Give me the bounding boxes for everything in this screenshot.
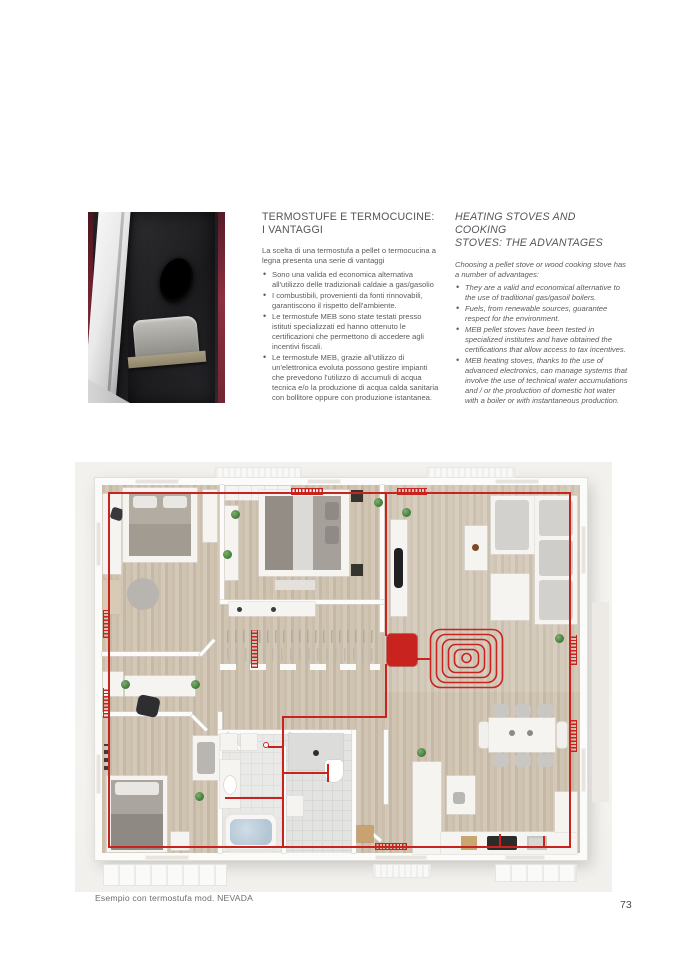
table-decor <box>472 544 479 551</box>
sofa-cushion <box>539 540 573 576</box>
radiator <box>251 630 258 668</box>
bed-blanket <box>265 496 293 570</box>
heating-pipe-tee <box>327 764 329 782</box>
kitchen-tall-cabinet <box>555 792 577 832</box>
pellet-stove-marker <box>387 634 417 666</box>
table-setting <box>509 730 515 736</box>
nightstand <box>351 564 363 576</box>
hanging-clothes-row <box>227 630 375 643</box>
heating-pipe-left <box>108 492 110 848</box>
stool <box>453 792 465 804</box>
english-title-line1: HEATING STOVES AND COOKING <box>455 211 576 236</box>
heating-pipe-branch <box>385 492 387 636</box>
plant <box>195 792 204 801</box>
english-bullet-list: They are a valid and economical alternat… <box>455 283 629 406</box>
english-bullet: MEB pellet stoves have been tested in sp… <box>455 325 629 355</box>
dining-chair-end <box>557 722 567 748</box>
italian-bullet: Sono una valida ed economica alternativa… <box>262 270 439 290</box>
wall <box>352 730 356 853</box>
wall <box>102 652 200 656</box>
plant <box>191 680 200 689</box>
bed-runner <box>293 496 313 570</box>
window <box>307 479 341 484</box>
ottoman <box>491 574 529 620</box>
italian-title: TERMOSTUFE E TERMOCUCINE: I VANTAGGI <box>262 211 439 237</box>
shelf-item <box>271 607 276 612</box>
italian-title-line1: TERMOSTUFE E TERMOCUCINE: <box>262 211 435 223</box>
storage-box <box>357 826 373 842</box>
plant <box>231 510 240 519</box>
radiator <box>103 610 110 638</box>
heating-pipe-top <box>108 492 571 494</box>
doormat-bottom-center <box>373 864 431 878</box>
kitchen-peninsula <box>413 762 441 854</box>
heating-pipe-corridor <box>282 716 387 718</box>
radiator <box>570 720 577 752</box>
english-bullet: MEB heating stoves, thanks to the use of… <box>455 356 629 406</box>
radiator <box>570 635 577 665</box>
pillow <box>325 502 339 520</box>
bed-blanket <box>129 524 191 556</box>
italian-title-line2: I VANTAGGI <box>262 224 323 236</box>
window <box>495 479 539 484</box>
plant <box>417 748 426 757</box>
italian-intro: La scelta di una termostufa a pellet o t… <box>262 246 439 266</box>
terrace-door <box>505 855 545 860</box>
round-rug <box>127 578 159 610</box>
window <box>96 522 101 566</box>
tv <box>394 548 403 588</box>
dining-chair <box>537 754 553 767</box>
heating-pipe-kitchen-stub <box>499 834 501 846</box>
wall <box>384 730 388 804</box>
heating-pipe-stub <box>268 746 282 748</box>
dining-chair-end <box>479 722 489 748</box>
stove-red-edge-right <box>218 212 225 403</box>
sofa-cushion <box>495 500 529 550</box>
doormat-top-left <box>215 467 301 478</box>
italian-bullet: I combustibili, provenienti da fonti rin… <box>262 291 439 311</box>
dining-chair <box>493 754 509 767</box>
english-title-line2: STOVES: THE ADVANTAGES <box>455 237 603 249</box>
bed-blanket <box>111 814 163 850</box>
hanging-clothes-row <box>227 648 375 661</box>
underfloor-heating-coil <box>429 628 505 690</box>
closet-divider-wall <box>220 664 380 670</box>
radiator <box>291 488 323 495</box>
english-column: HEATING STOVES AND COOKING STOVES: THE A… <box>455 211 629 407</box>
washer <box>221 734 237 750</box>
italian-column: TERMOSTUFE E TERMOCUCINE: I VANTAGGI La … <box>262 211 439 404</box>
terrace-door <box>145 855 189 860</box>
english-bullet: They are a valid and economical alternat… <box>455 283 629 303</box>
window <box>581 748 586 792</box>
wardrobe-cabinet <box>203 490 217 542</box>
wall <box>380 485 384 632</box>
window <box>135 479 179 484</box>
plant <box>374 498 383 507</box>
vanity-desk <box>103 494 121 574</box>
floor-plan-caption: Esempio con termostufa mod. NEVADA <box>95 893 253 903</box>
dining-chair <box>537 704 553 717</box>
dining-chair <box>515 704 531 717</box>
english-intro: Choosing a pellet stove or wood cooking … <box>455 260 629 280</box>
plant <box>402 508 411 517</box>
window <box>581 526 586 574</box>
office-chair <box>135 694 161 718</box>
plant <box>223 550 232 559</box>
window <box>96 754 101 794</box>
heating-pipe-branch <box>385 664 387 718</box>
heating-pipe-bath-branch <box>282 772 328 774</box>
heating-pipe-kitchen-stub <box>543 836 545 846</box>
dining-chair <box>515 754 531 767</box>
english-bullet: Fuels, from renewable sources, guarantee… <box>455 304 629 324</box>
stove-detail-photo <box>88 212 225 403</box>
terrace-bottom-right <box>495 864 577 882</box>
pillow <box>163 496 187 508</box>
catalog-page: TERMOSTUFE E TERMOCUCINE: I VANTAGGI La … <box>0 0 678 959</box>
heating-pipe-bath-branch <box>225 797 282 799</box>
pillow <box>133 496 157 508</box>
heating-pipe-bottom <box>108 846 571 848</box>
heating-pipe-right <box>569 492 571 848</box>
page-number: 73 <box>620 899 632 911</box>
italian-bullet: Le termostufe MEB sono state testati pre… <box>262 312 439 352</box>
terrace-door <box>375 855 427 860</box>
wall <box>220 485 224 602</box>
english-title: HEATING STOVES AND COOKING STOVES: THE A… <box>455 211 629 251</box>
plant <box>121 680 130 689</box>
radiator <box>103 688 110 718</box>
bathtub-water <box>230 819 272 845</box>
italian-bullet: Le termostufe MEB, grazie all'utilizzo d… <box>262 353 439 403</box>
plant <box>555 634 564 643</box>
dining-chair <box>493 704 509 717</box>
terrace-bottom-left <box>103 864 227 886</box>
bench <box>103 580 121 614</box>
sink <box>224 776 236 794</box>
armchair-cushion <box>197 742 215 774</box>
sofa-cushion <box>539 580 573 620</box>
pillow <box>325 526 339 544</box>
dining-table <box>489 718 555 752</box>
washbasin <box>287 796 303 816</box>
dryer <box>241 734 257 750</box>
italian-bullet-list: Sono una valida ed economica alternativa… <box>262 270 439 403</box>
sofa-cushion <box>539 500 573 536</box>
bench <box>275 580 315 590</box>
heating-pipe-bath <box>282 716 284 848</box>
doormat-top-right <box>427 467 515 478</box>
side-balcony <box>591 602 609 802</box>
floor-plan-image <box>75 462 612 892</box>
table-setting <box>527 730 533 736</box>
radiator <box>375 843 407 850</box>
manifold-point <box>263 742 269 748</box>
stove-interior-panel <box>128 212 215 403</box>
shelf-item <box>237 607 242 612</box>
shower-drain <box>313 750 319 756</box>
pillow <box>115 782 159 795</box>
radiator <box>397 488 427 495</box>
study-desk <box>125 676 195 696</box>
